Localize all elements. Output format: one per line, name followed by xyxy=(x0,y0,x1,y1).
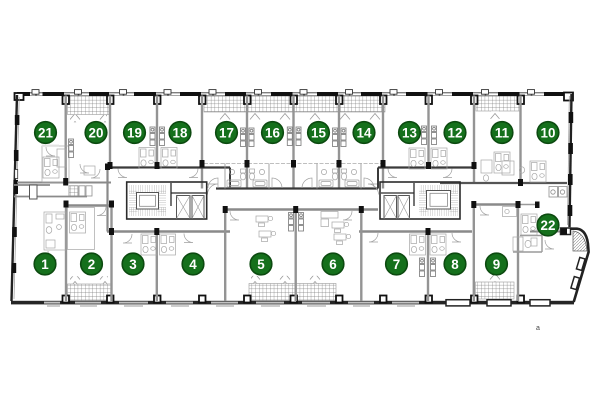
svg-text:10: 10 xyxy=(541,126,556,141)
svg-text:5: 5 xyxy=(257,257,265,272)
svg-text:15: 15 xyxy=(311,126,326,141)
svg-text:19: 19 xyxy=(127,126,142,141)
svg-text:22: 22 xyxy=(541,218,556,233)
svg-text:12: 12 xyxy=(448,126,463,141)
svg-text:18: 18 xyxy=(173,126,188,141)
svg-text:7: 7 xyxy=(393,257,400,272)
svg-text:20: 20 xyxy=(89,126,104,141)
svg-text:11: 11 xyxy=(495,126,510,141)
svg-text:9: 9 xyxy=(493,257,500,272)
svg-text:13: 13 xyxy=(402,126,417,141)
svg-text:16: 16 xyxy=(265,126,280,141)
svg-text:3: 3 xyxy=(129,257,136,272)
svg-text:a: a xyxy=(536,325,540,332)
svg-text:17: 17 xyxy=(219,126,234,141)
svg-text:21: 21 xyxy=(38,126,53,141)
svg-text:2: 2 xyxy=(88,257,95,272)
svg-text:14: 14 xyxy=(357,126,372,141)
svg-text:6: 6 xyxy=(329,257,336,272)
svg-text:8: 8 xyxy=(451,257,459,272)
svg-text:1: 1 xyxy=(41,257,49,272)
svg-text:4: 4 xyxy=(189,257,197,272)
